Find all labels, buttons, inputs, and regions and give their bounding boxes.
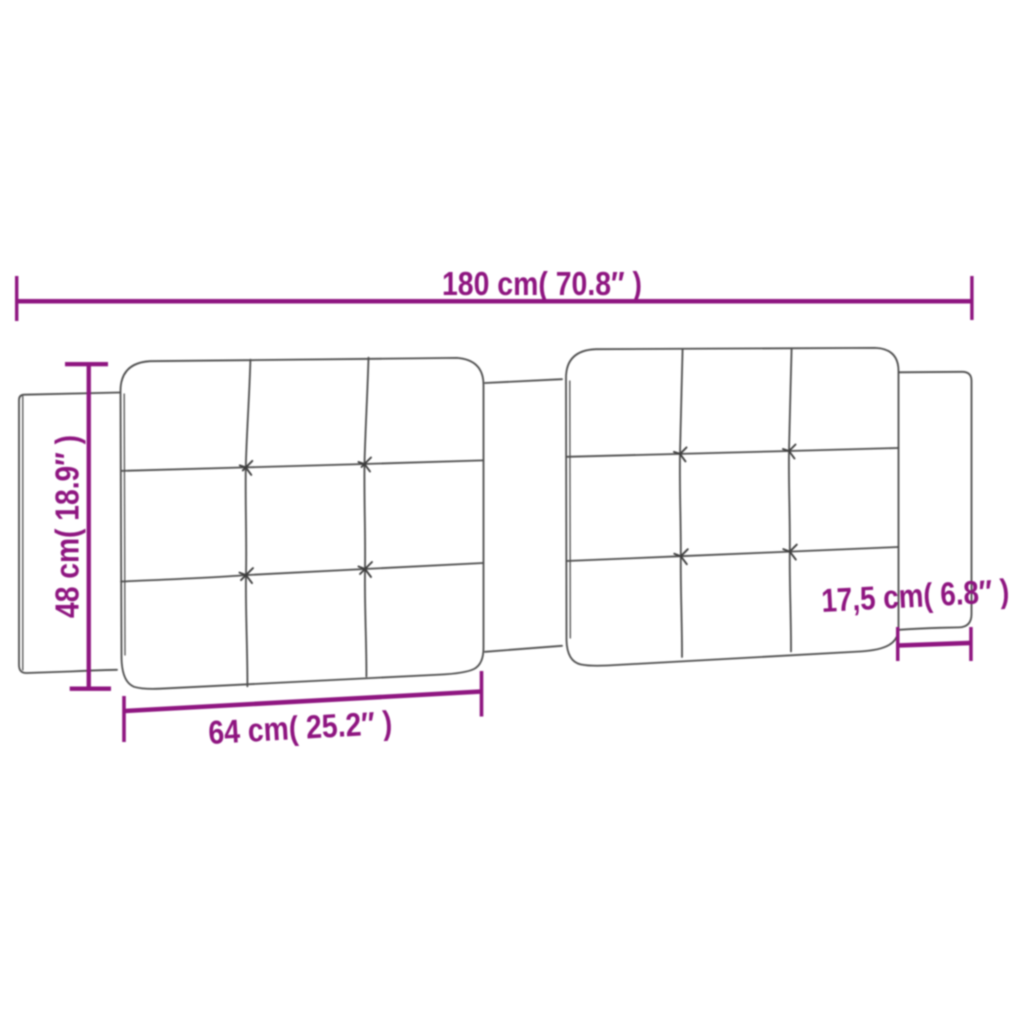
svg-text:180 cm( 70.8″ ): 180 cm( 70.8″ ) (442, 265, 642, 302)
svg-text:48 cm( 18.9″ ): 48 cm( 18.9″ ) (49, 435, 86, 618)
